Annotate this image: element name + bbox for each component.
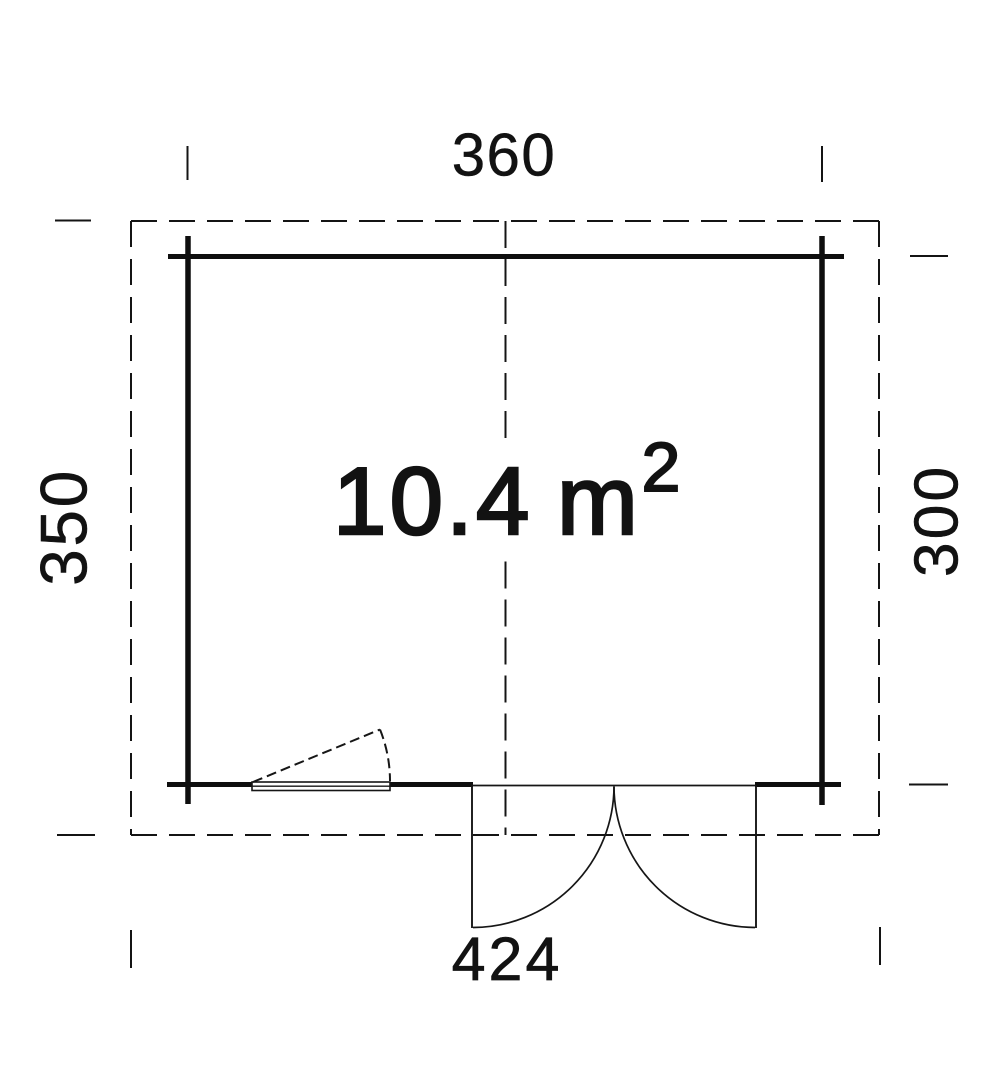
svg-text:10.4: 10.4 [333,448,533,555]
svg-text:300: 300 [902,464,972,577]
svg-text:2: 2 [642,428,681,506]
svg-text:m: m [557,446,638,555]
svg-text:360: 360 [452,122,557,189]
svg-text:350: 350 [27,468,101,586]
svg-text:424: 424 [452,925,563,993]
